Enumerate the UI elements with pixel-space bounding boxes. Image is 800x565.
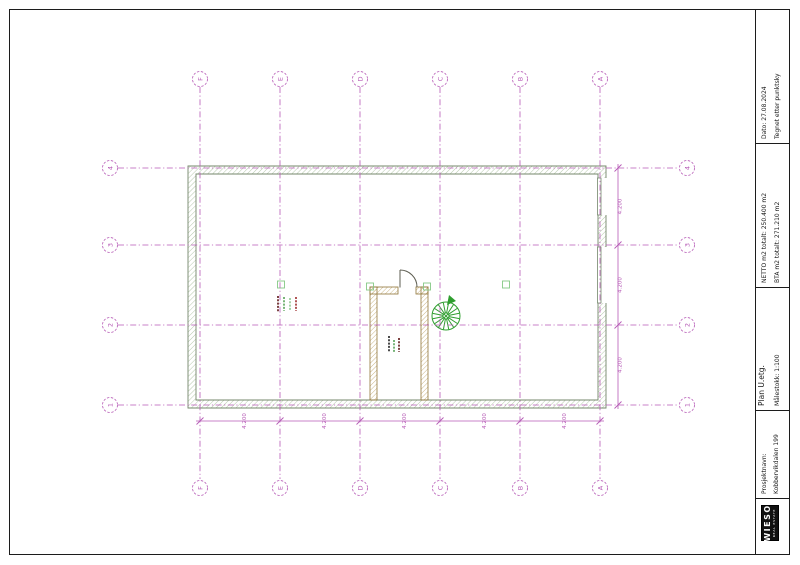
titleblock-cell-divider — [756, 143, 790, 144]
sheet-border — [9, 9, 790, 555]
titleblock-bta-area: BTA m2 totalt: 271.210 m2 — [773, 202, 783, 283]
titleblock-scale: Målestokk: 1:100 — [773, 354, 783, 406]
titleblock-divider — [755, 9, 756, 555]
titleblock-project-label: Prosjektnavn: — [760, 453, 770, 494]
drawing-sheet: FFEEDDCCBBAA443322114.2004.2004.2004.200… — [0, 0, 800, 565]
titleblock-note: Tegnet etter punktsky — [773, 73, 783, 139]
titleblock-netto-area: NETTO m2 totalt: 250.400 m2 — [760, 193, 770, 283]
logo-text: WIESO — [764, 504, 772, 541]
titleblock-plan-title: Plan U.etg. — [757, 365, 767, 406]
titleblock-cell-divider — [756, 410, 790, 411]
titleblock-cell-divider — [756, 498, 790, 499]
titleblock-project-name: Kobbervikdalen 199 — [772, 434, 782, 494]
titleblock-cell-divider — [756, 287, 790, 288]
company-logo: WIESO REAL ESTATE — [761, 505, 779, 541]
logo-subtext: REAL ESTATE — [772, 509, 776, 537]
titleblock-date: Dato: 27.08.2024 — [760, 86, 770, 139]
